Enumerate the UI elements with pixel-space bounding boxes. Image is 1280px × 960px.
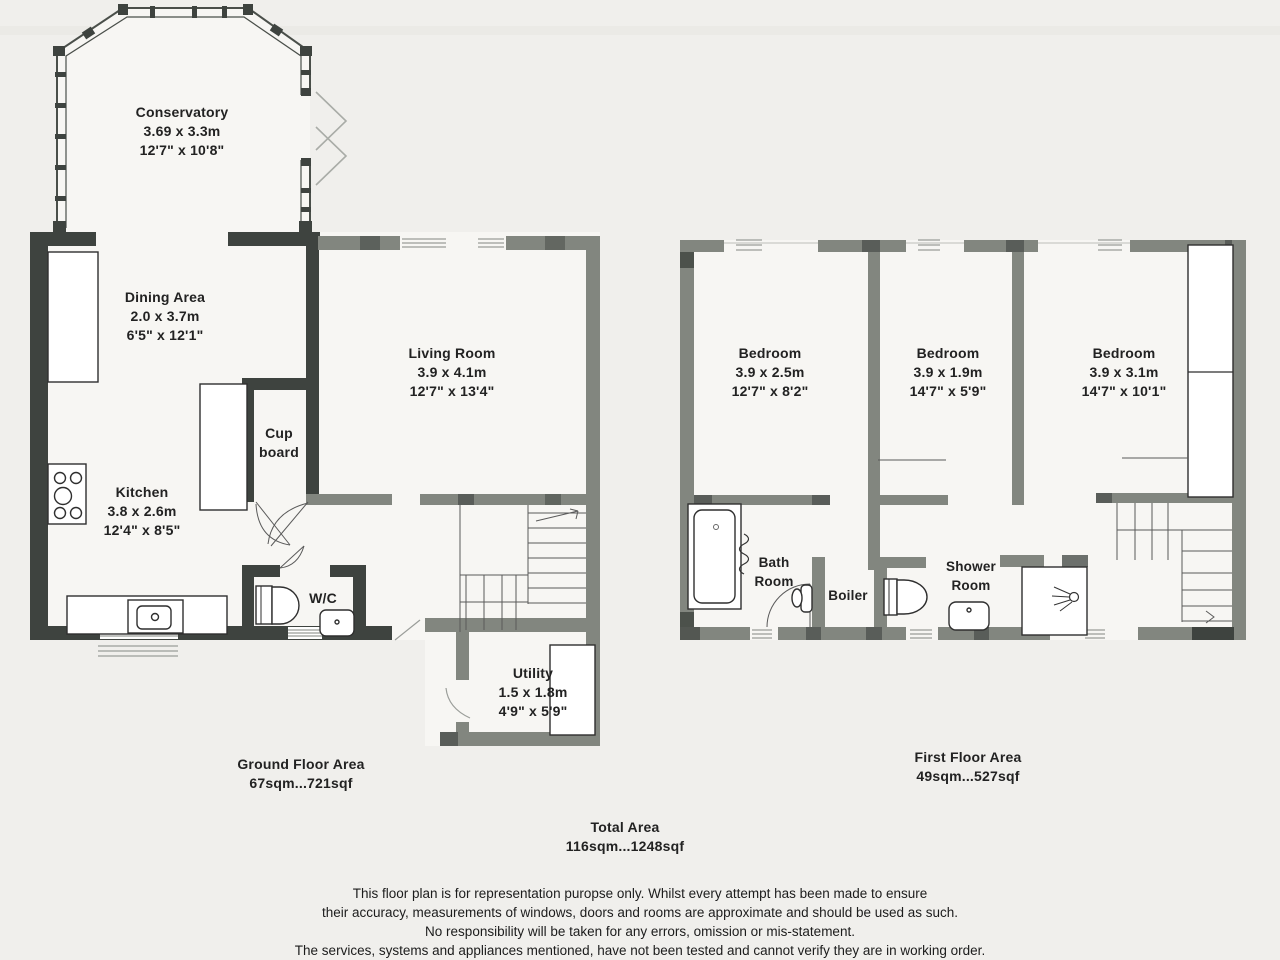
room-label-bedroom2: Bedroom 3.9 x 1.9m 14'7" x 5'9" xyxy=(910,344,987,401)
total-area-summary: Total Area 116sqm...1248sqf xyxy=(566,818,684,856)
room-name-line1: Shower xyxy=(946,557,996,576)
room-dim-imperial: 12'4" x 8'5" xyxy=(104,521,181,540)
wc-toilet-icon xyxy=(256,586,299,624)
ground-floor-area-summary: Ground Floor Area 67sqm...721sqf xyxy=(237,755,364,793)
room-dim-metric: 3.69 x 3.3m xyxy=(136,122,229,141)
room-dim-metric: 2.0 x 3.7m xyxy=(125,307,205,326)
room-dim-metric: 3.9 x 4.1m xyxy=(409,363,496,382)
area-value: 116sqm...1248sqf xyxy=(566,837,684,856)
room-label-bedroom1: Bedroom 3.9 x 2.5m 12'7" x 8'2" xyxy=(732,344,809,401)
room-name: Conservatory xyxy=(136,103,229,122)
shower-room-toilet-icon xyxy=(884,579,927,615)
room-label-utility: Utility 1.5 x 1.8m 4'9" x 5'9" xyxy=(499,664,568,721)
room-label-conservatory: Conservatory 3.69 x 3.3m 12'7" x 10'8" xyxy=(136,103,229,160)
room-label-boiler: Boiler xyxy=(828,586,867,605)
bathtub-icon xyxy=(688,504,741,609)
disclaimer-line: This floor plan is for representation pu… xyxy=(295,884,985,903)
room-name: Dining Area xyxy=(125,288,205,307)
room-name: Bedroom xyxy=(910,344,987,363)
area-label: Ground Floor Area xyxy=(237,755,364,774)
room-label-bedroom3: Bedroom 3.9 x 3.1m 14'7" x 10'1" xyxy=(1082,344,1167,401)
room-dim-metric: 3.9 x 2.5m xyxy=(732,363,809,382)
room-name: W/C xyxy=(309,589,337,608)
room-name-line1: Cup xyxy=(259,424,299,443)
shower-cubicle xyxy=(1022,567,1087,635)
kitchen-sink-icon xyxy=(128,600,183,633)
room-name-line2: board xyxy=(259,443,299,462)
room-dim-metric: 3.8 x 2.6m xyxy=(104,502,181,521)
room-name-line2: Room xyxy=(754,572,793,591)
room-name: Utility xyxy=(499,664,568,683)
room-dim-imperial: 4'9" x 5'9" xyxy=(499,702,568,721)
area-value: 49sqm...527sqf xyxy=(915,767,1022,786)
room-dim-imperial: 14'7" x 10'1" xyxy=(1082,382,1167,401)
room-dim-metric: 3.9 x 3.1m xyxy=(1082,363,1167,382)
shower-room-basin-icon xyxy=(949,602,989,630)
room-dim-imperial: 12'7" x 8'2" xyxy=(732,382,809,401)
area-label: First Floor Area xyxy=(915,748,1022,767)
room-label-wc: W/C xyxy=(309,589,337,608)
room-name-line2: Room xyxy=(946,576,996,595)
room-name: Bedroom xyxy=(1082,344,1167,363)
room-dim-metric: 3.9 x 1.9m xyxy=(910,363,987,382)
disclaimer-text: This floor plan is for representation pu… xyxy=(295,884,985,960)
room-dim-metric: 1.5 x 1.8m xyxy=(499,683,568,702)
room-dim-imperial: 14'7" x 5'9" xyxy=(910,382,987,401)
room-dim-imperial: 12'7" x 13'4" xyxy=(409,382,496,401)
disclaimer-line: their accuracy, measurements of windows,… xyxy=(295,903,985,922)
room-dim-imperial: 6'5" x 12'1" xyxy=(125,326,205,345)
area-label: Total Area xyxy=(566,818,684,837)
disclaimer-line: No responsibility will be taken for any … xyxy=(295,922,985,941)
wc-basin-icon xyxy=(320,610,354,636)
room-label-shower: Shower Room xyxy=(946,557,996,595)
room-name: Living Room xyxy=(409,344,496,363)
hob-icon xyxy=(48,464,86,524)
room-label-bathroom: Bath Room xyxy=(754,553,793,591)
room-label-cupboard: Cup board xyxy=(259,424,299,462)
first-floor-area-summary: First Floor Area 49sqm...527sqf xyxy=(915,748,1022,786)
conservatory-door-chevrons xyxy=(316,92,346,185)
floorplan-page: Conservatory 3.69 x 3.3m 12'7" x 10'8" D… xyxy=(0,0,1280,960)
room-name: Boiler xyxy=(828,586,867,605)
room-dim-imperial: 12'7" x 10'8" xyxy=(136,141,229,160)
room-label-dining: Dining Area 2.0 x 3.7m 6'5" x 12'1" xyxy=(125,288,205,345)
room-label-kitchen: Kitchen 3.8 x 2.6m 12'4" x 8'5" xyxy=(104,483,181,540)
room-name: Bedroom xyxy=(732,344,809,363)
room-name-line1: Bath xyxy=(754,553,793,572)
room-name: Kitchen xyxy=(104,483,181,502)
area-value: 67sqm...721sqf xyxy=(237,774,364,793)
room-label-living: Living Room 3.9 x 4.1m 12'7" x 13'4" xyxy=(409,344,496,401)
disclaimer-line: The services, systems and appliances men… xyxy=(295,941,985,960)
